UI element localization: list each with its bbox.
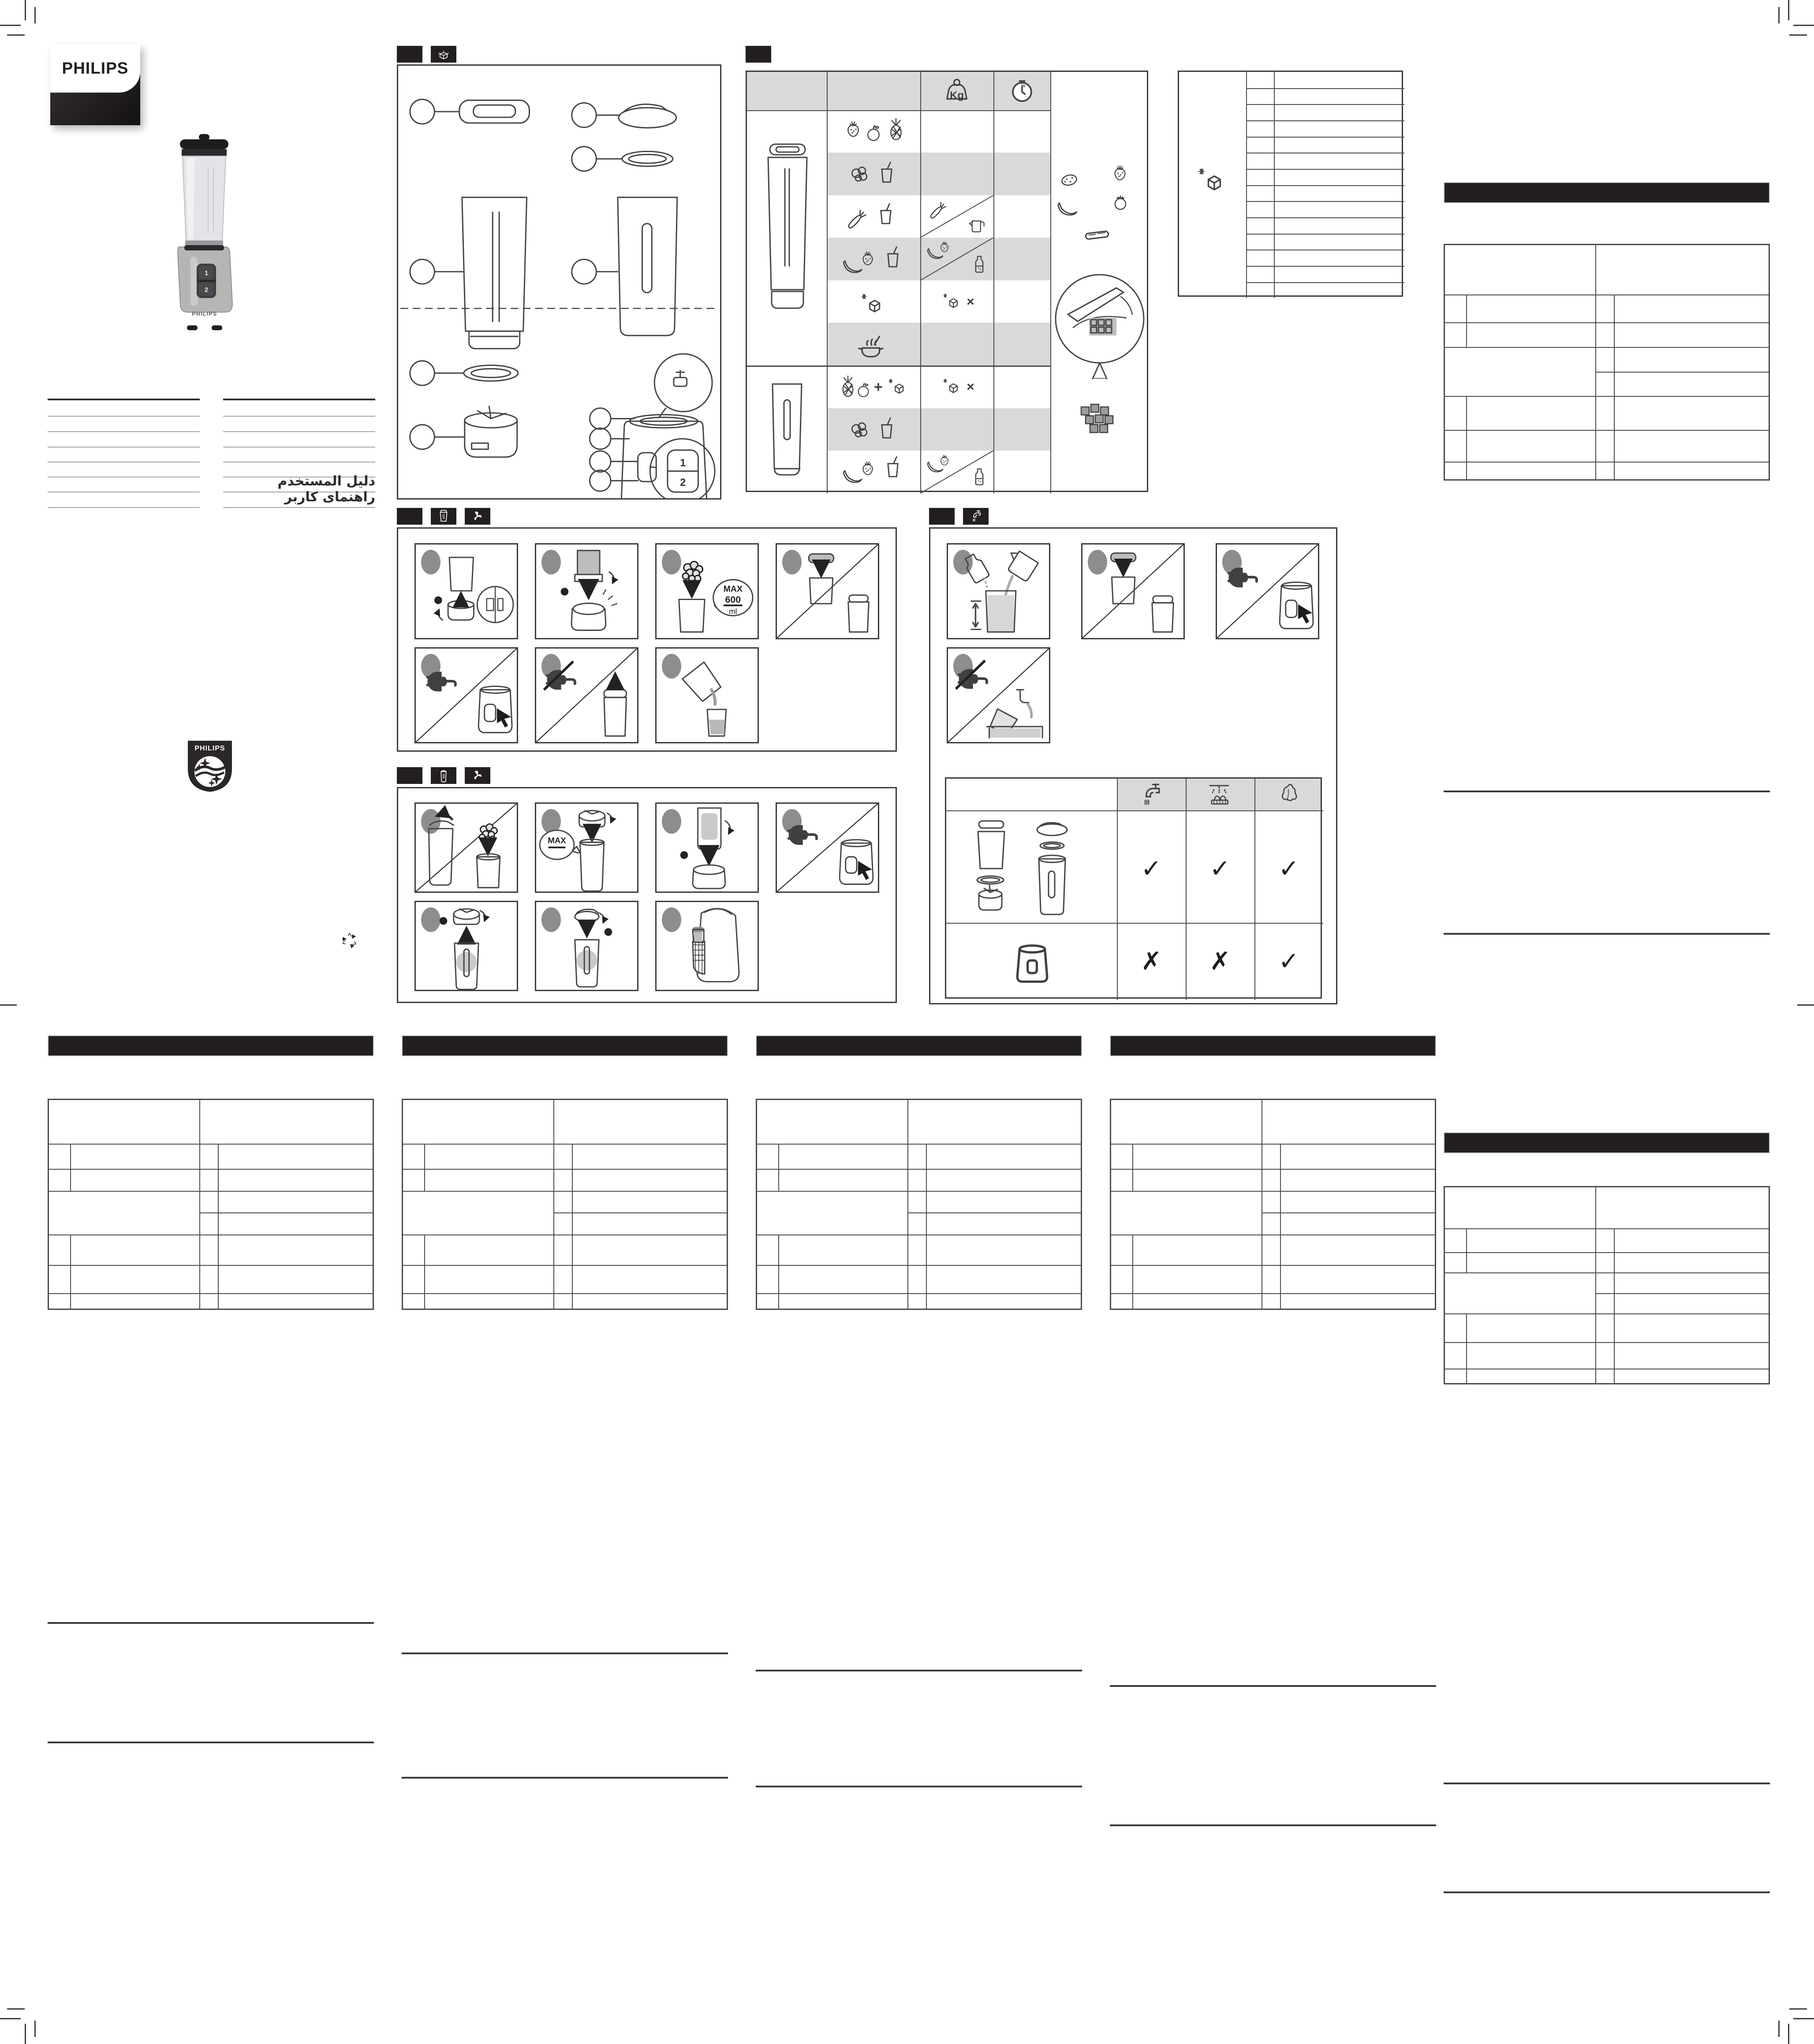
callout-e: [572, 259, 597, 284]
crop-mark: [25, 0, 26, 20]
kg-label: Kg: [943, 90, 971, 102]
section-2-label: [746, 46, 771, 63]
tumbler-step-5: [414, 901, 518, 991]
apple-icon: [852, 378, 875, 401]
crop-mark: [1788, 2024, 1789, 2044]
spec-table-2: [402, 1099, 728, 1310]
section-5-label: [929, 508, 955, 525]
sidebar-heading-bar-2: [1444, 1132, 1770, 1153]
rule-line: [48, 477, 200, 477]
greens-icon: [845, 414, 875, 444]
clean-step-1: [947, 543, 1050, 639]
rule-line: [48, 507, 200, 508]
tumbler-drawing: [618, 198, 677, 336]
wipe-ok-mark: ✓: [1279, 857, 1299, 881]
rule-line: [48, 431, 200, 432]
greens-icon: [845, 158, 875, 188]
tumbler-step-7: [655, 901, 759, 991]
sidebar-table-2: [1444, 1186, 1770, 1384]
crop-mark: [0, 25, 21, 26]
jar-step-4: [776, 543, 879, 639]
ice-multiplier: ×: [967, 295, 974, 310]
tumbler-step-4: [776, 802, 879, 893]
callout-g: [410, 425, 435, 449]
banana-icon: [1053, 192, 1083, 222]
callout-f: [410, 361, 435, 386]
rule-line: [223, 416, 375, 417]
cutting-detail: [1050, 261, 1150, 493]
crop-mark: [25, 2024, 26, 2044]
fold-mark: [0, 1004, 17, 1006]
rule-line: [223, 447, 375, 448]
ice-cubes-icon: [1192, 160, 1235, 202]
wipe-ok-mark: ✓: [1279, 949, 1299, 974]
callout-d: [572, 147, 597, 172]
base-brand-label: PHILIPS: [192, 311, 217, 317]
speed-1-button: 1: [205, 269, 208, 277]
recipe-header-row: [747, 72, 1050, 110]
sealing-ring-drawing: [622, 151, 673, 166]
sidebar-rule: [1444, 1891, 1770, 1893]
callout-k: [590, 470, 611, 491]
crop-mark: [1789, 34, 1807, 36]
recycle-icon: [339, 929, 360, 952]
faucet-icon: [968, 509, 984, 524]
callout-b: [410, 259, 435, 284]
strawberry-icon: [1108, 160, 1132, 185]
jar-ring-drawing: [464, 365, 518, 381]
user-manual-arabic: دليل المستخدم: [223, 474, 375, 489]
rule-line: [223, 462, 375, 463]
tumbler-step-6: [535, 901, 638, 991]
jar-lid: [180, 139, 228, 149]
clean-step-2: [1081, 543, 1185, 639]
blade-label: [465, 508, 490, 525]
unboxing-icon: [433, 47, 454, 62]
ice-limit-cell: ×: [920, 366, 993, 408]
strawberry-icon: [856, 456, 879, 479]
crop-mark: [1778, 7, 1780, 23]
rule-line: [48, 447, 200, 448]
motor-base-drawing: [1004, 931, 1061, 992]
text-rule: [756, 1786, 1082, 1787]
sidebar-rule: [1444, 1783, 1770, 1784]
strawberry-icon: [856, 246, 879, 269]
soup-pot-icon: [853, 328, 889, 365]
plus-sign: +: [874, 379, 883, 396]
crop-mark: [0, 2018, 21, 2019]
detachable-parts-drawing: [959, 818, 1105, 918]
jar-step-5: [414, 647, 518, 743]
callout-c: [572, 103, 597, 127]
juice-glass-icon: [870, 199, 901, 230]
ice-multiplier: ×: [967, 380, 974, 395]
text-rule: [402, 1777, 728, 1779]
section-3-label: [397, 508, 422, 525]
jar-drawing: [462, 198, 527, 332]
jar-step-2: [535, 543, 638, 639]
ice-limit-cell: ×: [920, 280, 993, 323]
clean-step-3: [1216, 543, 1319, 639]
shield-wordmark: PHILIPS: [194, 745, 225, 752]
shake-glass-icon: [877, 452, 908, 483]
zoom-speed-1: 1: [680, 457, 686, 469]
blade-icon: [470, 768, 485, 783]
tumbler-label: [431, 767, 456, 784]
sidebar-heading-bar-1: [1444, 182, 1770, 203]
jar-lid-drawing: [459, 100, 530, 123]
milk-jug-icon: [965, 212, 989, 237]
parts-diagram: 1 2: [398, 66, 720, 498]
carrot-icon: [925, 197, 951, 223]
dishwasher-no-mark: ✗: [1210, 949, 1231, 974]
tomato-icon: [1108, 189, 1133, 215]
faucet-icon: [1136, 780, 1165, 809]
potato-icon: [1056, 165, 1083, 193]
tap-no-mark: ✗: [1141, 949, 1162, 974]
clean-step-4: [947, 647, 1050, 743]
recipe-table: Kg: [746, 71, 1148, 492]
timer-icon: [1006, 75, 1038, 107]
crop-mark: [34, 7, 36, 23]
sidebar-rule: [1444, 933, 1770, 935]
callout-a: [410, 99, 435, 124]
max-label: MAX: [724, 584, 743, 594]
max-unit: ml: [729, 607, 737, 616]
jar-step-7: [655, 647, 759, 743]
philips-wordmark: PHILIPS: [62, 59, 129, 78]
section-heading-bar-2: [402, 1035, 728, 1056]
parts-panel: 1 2: [397, 64, 721, 500]
crop-mark: [1789, 2008, 1807, 2010]
fold-mark: [1797, 1004, 1814, 1006]
callout-h: [590, 408, 611, 429]
zoom-speed-2: 2: [680, 477, 686, 489]
pineapple-icon: [881, 113, 911, 143]
shake-glass-icon: [877, 242, 908, 273]
text-rule: [756, 1670, 1082, 1671]
jar-lid-handle: [199, 134, 209, 140]
section-heading-bar-4: [1110, 1035, 1436, 1056]
ice-cubes-icon: [856, 287, 892, 322]
jar-icon: [436, 509, 451, 524]
tumbler-icon: [436, 768, 451, 783]
speed-2-button: 2: [205, 286, 208, 294]
spec-table-1: [48, 1099, 374, 1310]
callout-i: [590, 428, 611, 449]
coupling-zoom-circle: [654, 354, 712, 412]
jar-step-6: [535, 647, 638, 743]
section-heading-bar-3: [756, 1035, 1082, 1056]
smoothie-glass-icon: [871, 157, 902, 188]
carrot-icon: [842, 204, 871, 233]
crop-mark: [1793, 2018, 1814, 2019]
max-volume: 600: [725, 594, 741, 605]
section-4-label: [397, 767, 422, 784]
milk-bottle-icon: [967, 464, 992, 490]
text-rule: [1110, 1824, 1436, 1826]
cloth-icon: [1274, 780, 1303, 809]
rule-line: [48, 462, 200, 463]
text-rule: [402, 1652, 728, 1654]
smoothie-glass-icon: [871, 413, 902, 444]
text-rule: [48, 1622, 374, 1624]
rule-line: [223, 431, 375, 432]
blade-label: [465, 767, 490, 784]
crop-mark: [1778, 2021, 1780, 2037]
crop-mark: [1788, 0, 1789, 20]
ice-cubes-icon: [939, 288, 967, 316]
max-label: MAX: [548, 836, 567, 845]
ice-cubes-icon: [939, 373, 967, 401]
philips-logo-block: PHILIPS: [50, 44, 140, 125]
rule-line: [223, 507, 375, 508]
ice-note-table: [1178, 71, 1403, 297]
rule-line: [48, 492, 200, 492]
strawberry-icon: [936, 238, 953, 255]
jar-step-3: MAX 600 ml: [655, 543, 759, 639]
tap-ok-mark: ✓: [1141, 857, 1162, 881]
crop-mark: [34, 2021, 36, 2037]
unboxing-label: [431, 46, 456, 63]
spec-table-3: [756, 1099, 1082, 1310]
tumbler-step-1: [414, 802, 518, 893]
callout-j: [590, 451, 611, 472]
rule-line: [223, 399, 375, 400]
tumbler-step-3: [655, 802, 759, 893]
text-rule: [1110, 1685, 1436, 1687]
user-guide-persian: راهنمای کاربر: [223, 489, 375, 505]
tumbler-device-drawing: [764, 378, 810, 484]
spec-table-4: [1110, 1099, 1436, 1310]
crop-mark: [1793, 25, 1814, 26]
section-1-label: [397, 46, 422, 63]
section-heading-bar-1: [48, 1035, 374, 1056]
jar-label: [431, 508, 456, 525]
rinse-label: [963, 508, 989, 525]
blade-icon: [470, 509, 485, 524]
base-drawing: [621, 421, 707, 498]
tumbler-step-2: MAX: [535, 802, 638, 893]
sidebar-rule: [1444, 791, 1770, 792]
philips-logo-panel: PHILIPS: [50, 44, 140, 93]
text-rule: [48, 1742, 374, 1743]
dishwasher-icon: [1205, 780, 1234, 809]
milk-bottle-icon: [967, 252, 992, 277]
philips-shield-logo: PHILIPS: [184, 739, 235, 794]
jar-device-drawing: [757, 138, 818, 328]
crop-mark: [7, 34, 25, 36]
dishwasher-ok-mark: ✓: [1210, 857, 1231, 881]
sidebar-table-1: [1444, 244, 1770, 481]
cucumber-icon: [1080, 218, 1114, 252]
manual-sheet: PHILIPS 1 2 PHILIPS: [0, 0, 1814, 2044]
jar-step-1: [414, 543, 518, 639]
strawberry-icon: [936, 451, 953, 469]
rule-line: [48, 416, 200, 417]
product-photo: 1 2 PHILIPS: [164, 131, 244, 336]
crop-mark: [7, 2008, 25, 2010]
ice-cubes-icon: [885, 373, 913, 402]
rule-line: [48, 399, 200, 400]
cleaning-method-table: ✓ ✓ ✓ ✗ ✗ ✓: [945, 777, 1322, 999]
